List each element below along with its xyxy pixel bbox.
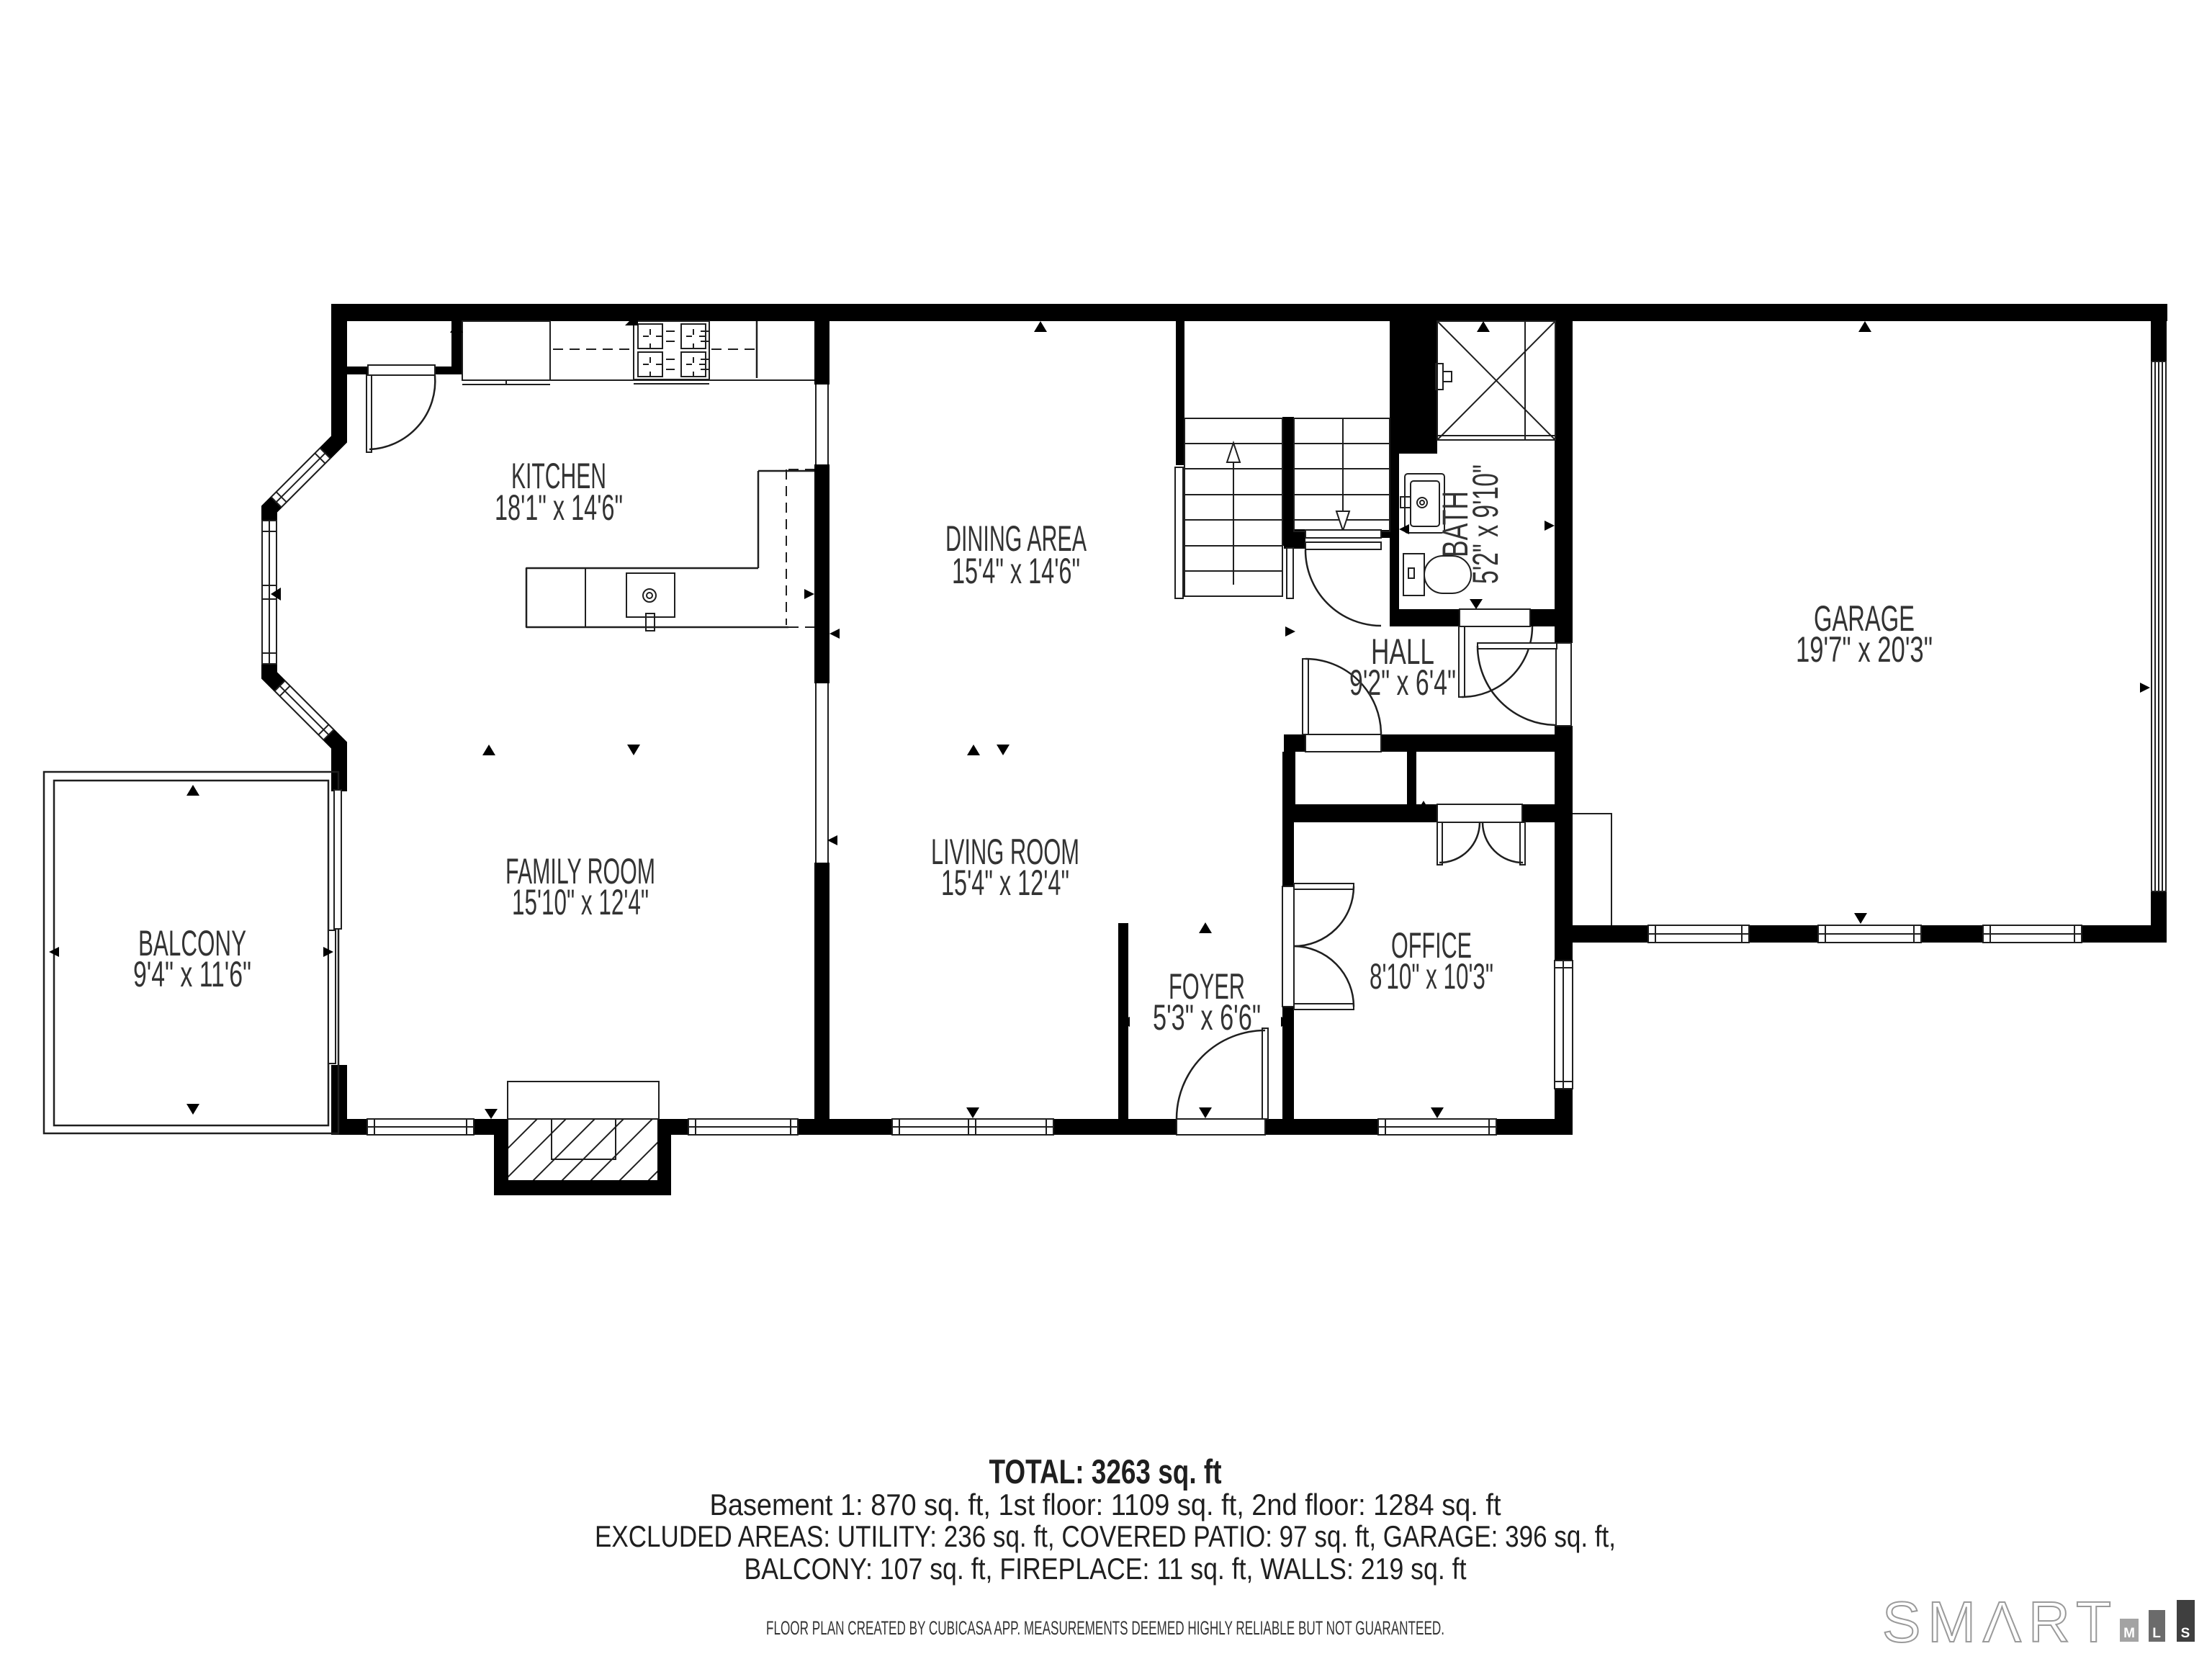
- svg-text:15'4" x 14'6": 15'4" x 14'6": [952, 551, 1080, 591]
- svg-text:S: S: [2181, 1626, 2190, 1641]
- svg-text:TOTAL: 3263 sq. ft: TOTAL: 3263 sq. ft: [989, 1452, 1222, 1491]
- svg-text:BALCONY: 107 sq. ft, FIREPLACE: BALCONY: 107 sq. ft, FIREPLACE: 11 sq. f…: [745, 1552, 1467, 1586]
- svg-text:8'10" x 10'3": 8'10" x 10'3": [1370, 956, 1493, 997]
- svg-text:18'1" x 14'6": 18'1" x 14'6": [495, 487, 623, 528]
- svg-text:Basement 1: 870 sq. ft, 1st fl: Basement 1: 870 sq. ft, 1st floor: 1109 …: [710, 1488, 1501, 1521]
- svg-text:19'7" x 20'3": 19'7" x 20'3": [1796, 629, 1933, 670]
- svg-text:9'2" x 6'4": 9'2" x 6'4": [1349, 662, 1456, 703]
- svg-text:5'2" x 9'10": 5'2" x 9'10": [1465, 464, 1506, 584]
- svg-text:FLOOR PLAN CREATED BY CUBICASA: FLOOR PLAN CREATED BY CUBICASA APP. MEAS…: [766, 1617, 1444, 1639]
- svg-text:L: L: [2152, 1626, 2161, 1641]
- svg-text:M: M: [2123, 1626, 2135, 1641]
- svg-text:SMΛRT: SMΛRT: [1882, 1590, 2111, 1654]
- svg-text:EXCLUDED AREAS: UTILITY: 236 s: EXCLUDED AREAS: UTILITY: 236 sq. ft, COV…: [595, 1519, 1616, 1553]
- svg-text:5'3" x 6'6": 5'3" x 6'6": [1153, 997, 1261, 1038]
- svg-text:15'10" x 12'4": 15'10" x 12'4": [512, 882, 649, 922]
- svg-text:9'4" x 11'6": 9'4" x 11'6": [133, 954, 251, 994]
- svg-text:15'4" x 12'4": 15'4" x 12'4": [941, 863, 1069, 903]
